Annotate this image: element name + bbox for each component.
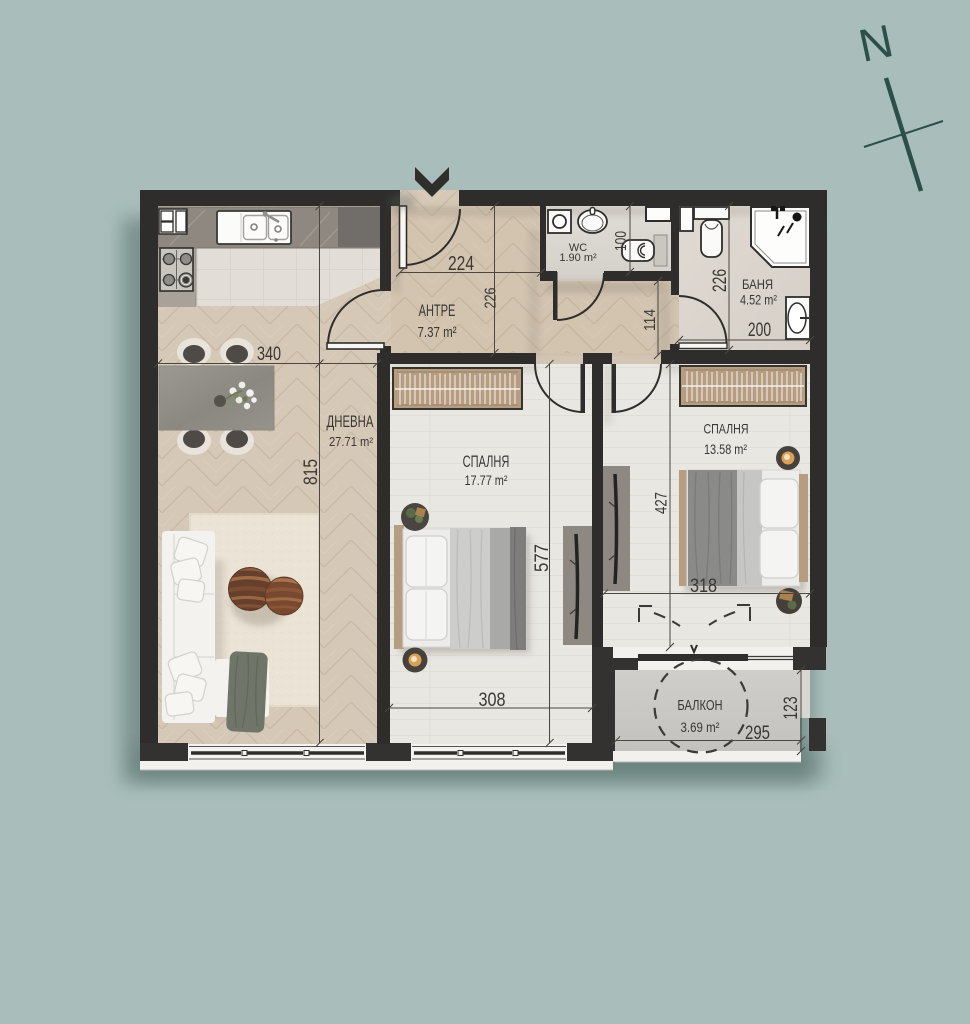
svg-text:27.71 m²: 27.71 m²: [329, 434, 373, 449]
svg-text:13.58 m²: 13.58 m²: [704, 442, 747, 457]
svg-text:577: 577: [531, 544, 552, 572]
svg-text:815: 815: [299, 459, 321, 485]
svg-text:1.90 m²: 1.90 m²: [559, 252, 597, 264]
svg-text:340: 340: [257, 342, 281, 365]
svg-text:7.37 m²: 7.37 m²: [417, 324, 457, 341]
svg-text:3.69 m²: 3.69 m²: [681, 719, 721, 735]
svg-text:ДНЕВНА: ДНЕВНА: [327, 413, 374, 432]
svg-text:308: 308: [479, 689, 506, 711]
svg-text:123: 123: [780, 696, 802, 719]
svg-text:200: 200: [748, 319, 771, 341]
svg-text:226: 226: [709, 269, 731, 292]
svg-text:427: 427: [652, 492, 671, 514]
svg-text:318: 318: [690, 575, 717, 597]
svg-text:224: 224: [448, 252, 474, 274]
svg-text:СПАЛНЯ: СПАЛНЯ: [463, 452, 510, 471]
svg-text:БАНЯ: БАНЯ: [742, 277, 773, 292]
svg-text:226: 226: [481, 287, 499, 308]
svg-text:4.52 m²: 4.52 m²: [740, 292, 777, 307]
svg-text:СПАЛНЯ: СПАЛНЯ: [703, 421, 748, 437]
svg-text:17.77 m²: 17.77 m²: [464, 473, 507, 488]
svg-text:114: 114: [642, 309, 659, 331]
svg-text:100: 100: [611, 231, 629, 251]
svg-text:АНТРЕ: АНТРЕ: [419, 301, 456, 320]
svg-text:БАЛКОН: БАЛКОН: [677, 697, 722, 714]
svg-text:295: 295: [745, 721, 770, 743]
